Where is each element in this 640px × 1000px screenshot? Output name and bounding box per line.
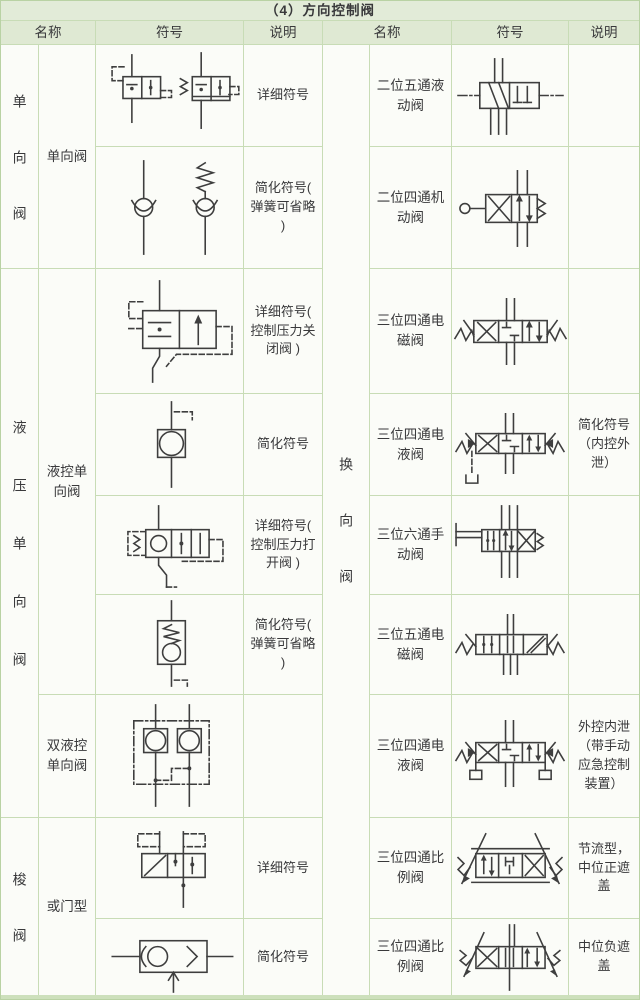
pilot-check-valve-close-detailed-symbol [96, 269, 244, 394]
shuttle-valve-detailed-symbol [96, 818, 244, 919]
valve-symbol-table: （4）方向控制阀 名称 符号 说明 名称 符号 说明 单向阀 液压单向阀 梭阀 … [1, 1, 639, 996]
desc-cell: 简化符号 [244, 919, 323, 996]
3pos-4way-proportional-valve-positive-symbol [452, 818, 569, 919]
name-cell: 三位六通手动阀 [370, 496, 452, 595]
desc-cell: 节流型，中位正遮盖 [569, 818, 639, 919]
desc-cell: 详细符号( 控制压力关闭阀 ) [244, 269, 323, 394]
valve-symbol-table-page: （4）方向控制阀 名称 符号 说明 名称 符号 说明 单向阀 液压单向阀 梭阀 … [0, 0, 640, 1000]
name-cell: 三位五通电磁阀 [370, 595, 452, 695]
name-cell: 二位四通机动阀 [370, 147, 452, 269]
desc-cell: 外控内泄（带手动应急控制装置） [569, 695, 639, 818]
desc-cell: 简化符号( 弹簧可省略 ) [244, 147, 323, 269]
header-desc-right: 说明 [569, 21, 639, 45]
subname-check-valve: 单向阀 [39, 45, 96, 269]
group-label-check-valve: 单向阀 [1, 45, 39, 269]
check-valve-simplified-symbol [96, 147, 244, 269]
3pos-4way-solenoid-valve-symbol [452, 269, 569, 394]
group-label-directional-valve: 换向阀 [323, 45, 370, 996]
pilot-check-valve-open-detailed-symbol [96, 496, 244, 595]
desc-cell: 简化符号( 弹簧可省略 ) [244, 595, 323, 695]
name-cell: 三位四通比例阀 [370, 818, 452, 919]
3pos-6way-manual-valve-symbol [452, 496, 569, 595]
desc-cell: 详细符号 [244, 818, 323, 919]
desc-cell: 详细符号 [244, 45, 323, 147]
pilot-check-valve-spring-simplified-symbol [96, 595, 244, 695]
3pos-5way-solenoid-valve-symbol [452, 595, 569, 695]
header-symbol-left: 符号 [96, 21, 244, 45]
name-cell: 三位四通比例阀 [370, 919, 452, 996]
shuttle-valve-simplified-symbol [96, 919, 244, 996]
desc-cell: 详细符号( 控制压力打开阀 ) [244, 496, 323, 595]
double-pilot-check-valve-symbol [96, 695, 244, 818]
table-title: （4）方向控制阀 [1, 1, 639, 21]
header-name-right: 名称 [323, 21, 452, 45]
desc-cell [244, 695, 323, 818]
3pos-4way-electrohydraulic-valve-simplified-symbol [452, 394, 569, 496]
name-cell: 三位四通电磁阀 [370, 269, 452, 394]
desc-cell [569, 147, 639, 269]
check-valve-detailed-symbol [96, 45, 244, 147]
name-cell: 三位四通电液阀 [370, 394, 452, 496]
2pos-5way-hydraulic-valve-symbol [452, 45, 569, 147]
header-name-left: 名称 [1, 21, 96, 45]
desc-cell [569, 45, 639, 147]
name-cell: 三位四通电液阀 [370, 695, 452, 818]
2pos-4way-mechanical-valve-symbol [452, 147, 569, 269]
name-cell: 二位五通液动阀 [370, 45, 452, 147]
3pos-4way-electrohydraulic-valve-symbol [452, 695, 569, 818]
desc-cell: 中位负遮盖 [569, 919, 639, 996]
subname-pilot-check-valve: 液控单向阀 [39, 269, 96, 695]
desc-cell [569, 269, 639, 394]
desc-cell [569, 595, 639, 695]
pilot-check-valve-simplified-symbol [96, 394, 244, 496]
desc-cell: 简化符号 [244, 394, 323, 496]
bottom-border-strip [1, 995, 639, 999]
group-label-shuttle-valve: 梭阀 [1, 818, 39, 996]
subname-or-gate-type: 或门型 [39, 818, 96, 996]
3pos-4way-proportional-valve-negative-symbol [452, 919, 569, 996]
group-label-hydraulic-check-valve: 液压单向阀 [1, 269, 39, 818]
header-symbol-right: 符号 [452, 21, 569, 45]
header-desc-left: 说明 [244, 21, 323, 45]
desc-cell [569, 496, 639, 595]
subname-double-pilot-check-valve: 双液控单向阀 [39, 695, 96, 818]
desc-cell: 简化符号（内控外泄） [569, 394, 639, 496]
